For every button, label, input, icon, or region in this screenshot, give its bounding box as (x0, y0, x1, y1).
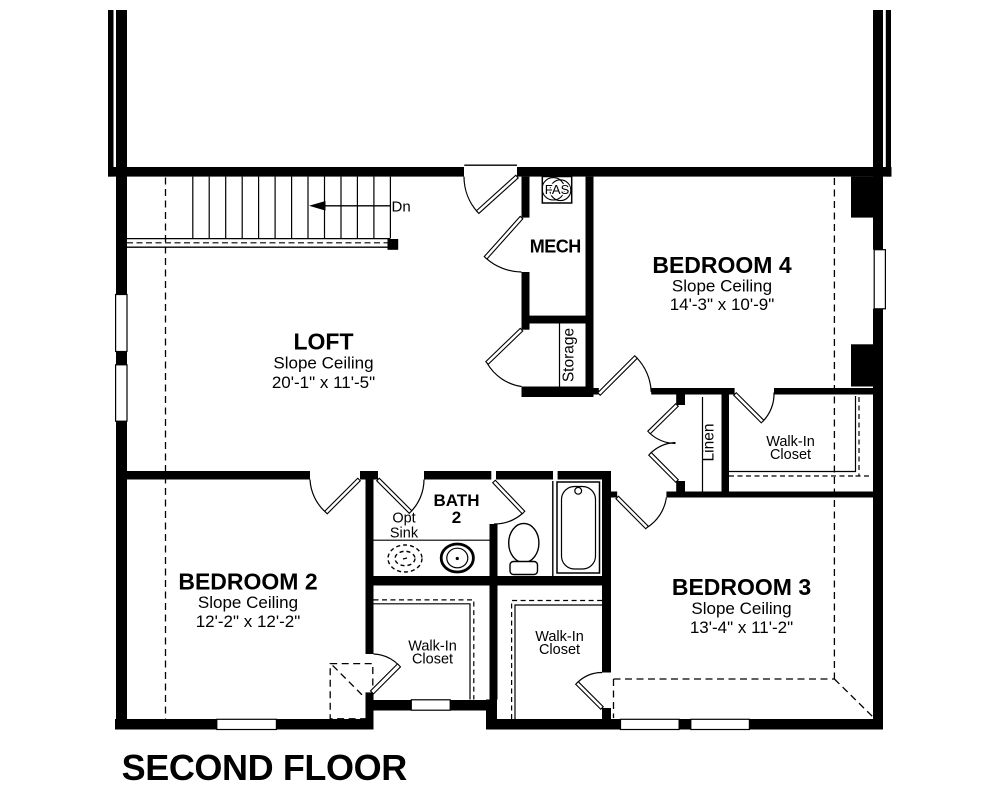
svg-text:Slope Ceiling: Slope Ceiling (672, 277, 772, 296)
svg-text:Closet: Closet (412, 652, 453, 668)
svg-text:14'-3" x 10'-9": 14'-3" x 10'-9" (670, 295, 775, 314)
svg-text:Closet: Closet (539, 642, 580, 658)
svg-text:2: 2 (452, 508, 461, 527)
svg-text:Slope Ceiling: Slope Ceiling (691, 599, 791, 618)
svg-text:Sink: Sink (390, 526, 419, 542)
svg-text:BEDROOM 4: BEDROOM 4 (652, 252, 792, 278)
svg-text:SECOND FLOOR: SECOND FLOOR (122, 747, 408, 788)
svg-text:Opt: Opt (392, 511, 415, 527)
svg-text:20'-1" x 11'-5": 20'-1" x 11'-5" (272, 373, 375, 392)
svg-text:LOFT: LOFT (293, 329, 353, 355)
svg-text:Linen: Linen (701, 424, 718, 462)
svg-text:Closet: Closet (770, 447, 811, 463)
svg-text:Storage: Storage (561, 328, 578, 382)
svg-text:Slope Ceiling: Slope Ceiling (198, 593, 298, 612)
svg-text:FAS: FAS (545, 182, 570, 197)
svg-text:13'-4" x 11'-2": 13'-4" x 11'-2" (690, 618, 793, 637)
svg-text:12'-2" x 12'-2": 12'-2" x 12'-2" (196, 612, 301, 631)
svg-text:Dn: Dn (392, 199, 411, 216)
svg-text:BEDROOM 3: BEDROOM 3 (672, 574, 811, 600)
svg-text:MECH: MECH (530, 237, 581, 257)
svg-text:Slope Ceiling: Slope Ceiling (273, 354, 373, 373)
svg-text:BEDROOM 2: BEDROOM 2 (178, 569, 317, 595)
